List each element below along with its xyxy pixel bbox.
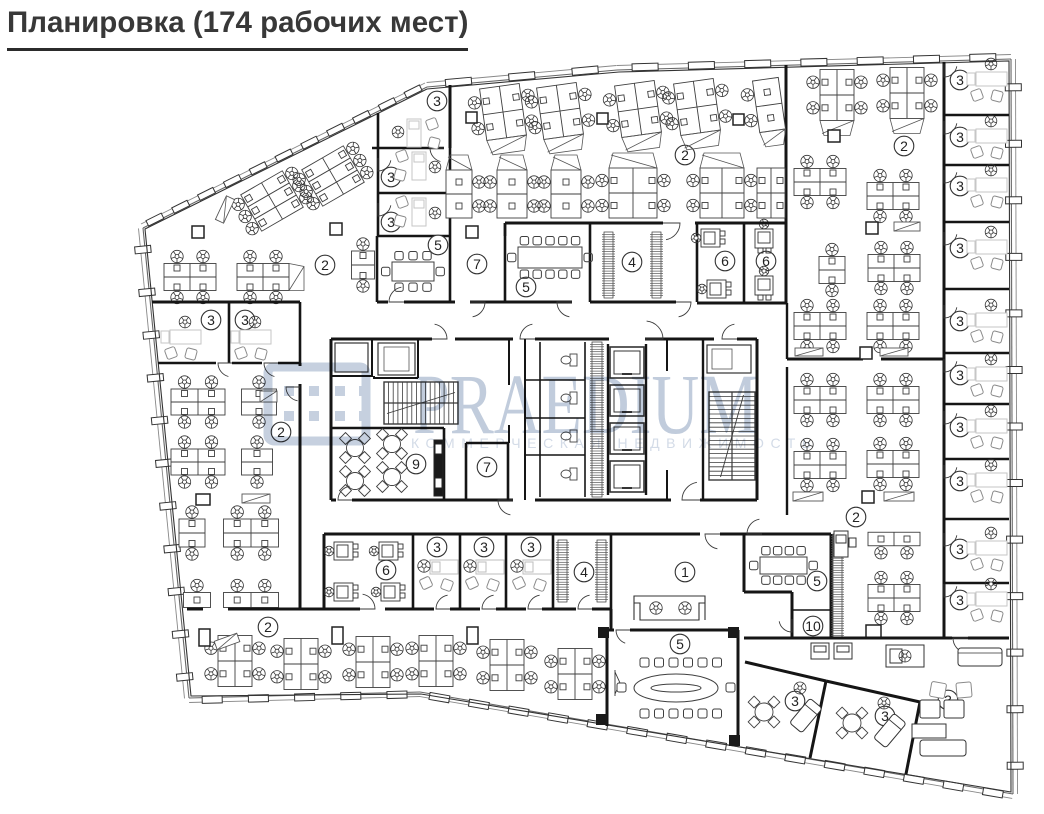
svg-text:3: 3 xyxy=(241,312,249,328)
svg-text:3: 3 xyxy=(791,693,799,709)
svg-text:3: 3 xyxy=(956,178,964,194)
svg-text:3: 3 xyxy=(956,367,964,383)
svg-text:3: 3 xyxy=(956,313,964,329)
svg-text:3: 3 xyxy=(956,240,964,256)
svg-text:9: 9 xyxy=(412,456,420,472)
svg-text:3: 3 xyxy=(207,312,215,328)
svg-text:3: 3 xyxy=(956,541,964,557)
svg-text:3: 3 xyxy=(433,93,441,109)
svg-text:6: 6 xyxy=(721,253,729,269)
svg-text:2: 2 xyxy=(264,619,272,635)
svg-text:1: 1 xyxy=(681,564,689,580)
svg-text:7: 7 xyxy=(473,256,481,272)
svg-text:4: 4 xyxy=(628,254,636,270)
svg-text:2: 2 xyxy=(900,138,908,154)
svg-text:6: 6 xyxy=(382,562,390,578)
svg-text:5: 5 xyxy=(676,636,684,652)
svg-text:5: 5 xyxy=(434,237,442,253)
svg-text:2: 2 xyxy=(681,147,689,163)
svg-text:3: 3 xyxy=(956,473,964,489)
svg-text:3: 3 xyxy=(956,72,964,88)
svg-text:5: 5 xyxy=(522,279,530,295)
svg-text:2: 2 xyxy=(321,257,329,273)
svg-text:3: 3 xyxy=(956,592,964,608)
svg-text:3: 3 xyxy=(956,129,964,145)
svg-text:4: 4 xyxy=(580,564,588,580)
svg-text:3: 3 xyxy=(480,539,488,555)
svg-text:7: 7 xyxy=(483,459,491,475)
svg-text:10: 10 xyxy=(805,618,821,634)
svg-text:5: 5 xyxy=(813,573,821,589)
svg-text:3: 3 xyxy=(433,539,441,555)
svg-text:3: 3 xyxy=(527,539,535,555)
svg-text:2: 2 xyxy=(852,509,860,525)
svg-text:3: 3 xyxy=(956,419,964,435)
